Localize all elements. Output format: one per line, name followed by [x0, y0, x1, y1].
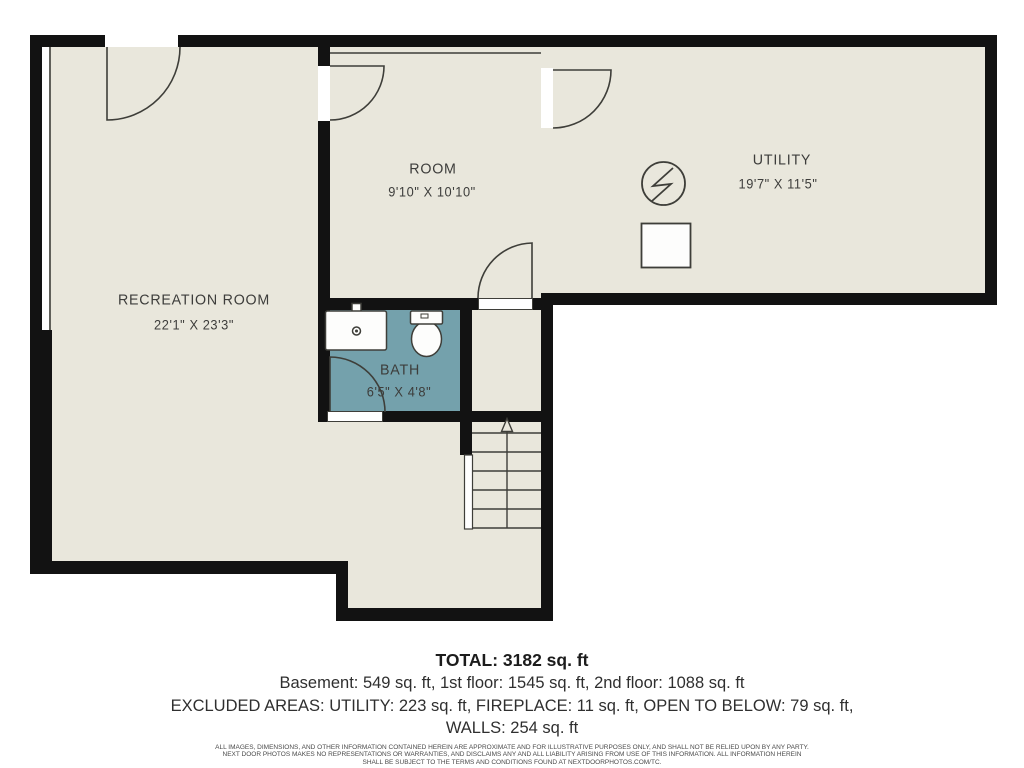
area-summary: TOTAL: 3182 sq. ft Basement: 549 sq. ft,… [0, 649, 1024, 766]
bathroom-sink-icon [326, 304, 387, 351]
lightning-bolt-circle-icon [642, 162, 685, 205]
room-dimensions: 9'10" X 10'10" [388, 185, 476, 200]
walls-area-line: WALLS: 254 sq. ft [0, 717, 1024, 740]
bath-label: BATH [380, 362, 420, 379]
total-area-line: TOTAL: 3182 sq. ft [0, 649, 1024, 672]
disclaimer-line-2: NEXT DOOR PHOTOS MAKES NO REPRESENTATION… [0, 751, 1024, 759]
disclaimer-line-1: ALL IMAGES, DIMENSIONS, AND OTHER INFORM… [0, 744, 1024, 752]
door-swing-hallway [478, 243, 532, 298]
floor-plan-page: RECREATION ROOM 22'1" X 23'3" ROOM 9'10"… [0, 0, 1024, 768]
door-swing-utility [553, 70, 611, 128]
recreation-room-label: RECREATION ROOM [118, 292, 270, 309]
utility-label: UTILITY [753, 152, 811, 169]
door-swing-recreation [107, 47, 180, 120]
disclaimer-text: ALL IMAGES, DIMENSIONS, AND OTHER INFORM… [0, 744, 1024, 767]
stairs-direction-arrow [502, 419, 513, 432]
stair-handrail [465, 455, 473, 529]
bath-dimensions: 6'5" X 4'8" [367, 385, 431, 400]
disclaimer-line-3: SHALL BE SUBJECT TO THE TERMS AND CONDIT… [0, 759, 1024, 767]
excluded-areas-line: EXCLUDED AREAS: UTILITY: 223 sq. ft, FIR… [0, 695, 1024, 718]
room-label: ROOM [409, 161, 456, 178]
stairs-up-arrow-icon [465, 419, 542, 530]
utility-dimensions: 19'7" X 11'5" [739, 177, 818, 192]
square-fixture-icon [642, 224, 691, 268]
floor-areas-line: Basement: 549 sq. ft, 1st floor: 1545 sq… [0, 672, 1024, 695]
toilet-icon [411, 311, 443, 357]
door-swing-room [330, 66, 384, 120]
recreation-room-dimensions: 22'1" X 23'3" [154, 318, 234, 333]
